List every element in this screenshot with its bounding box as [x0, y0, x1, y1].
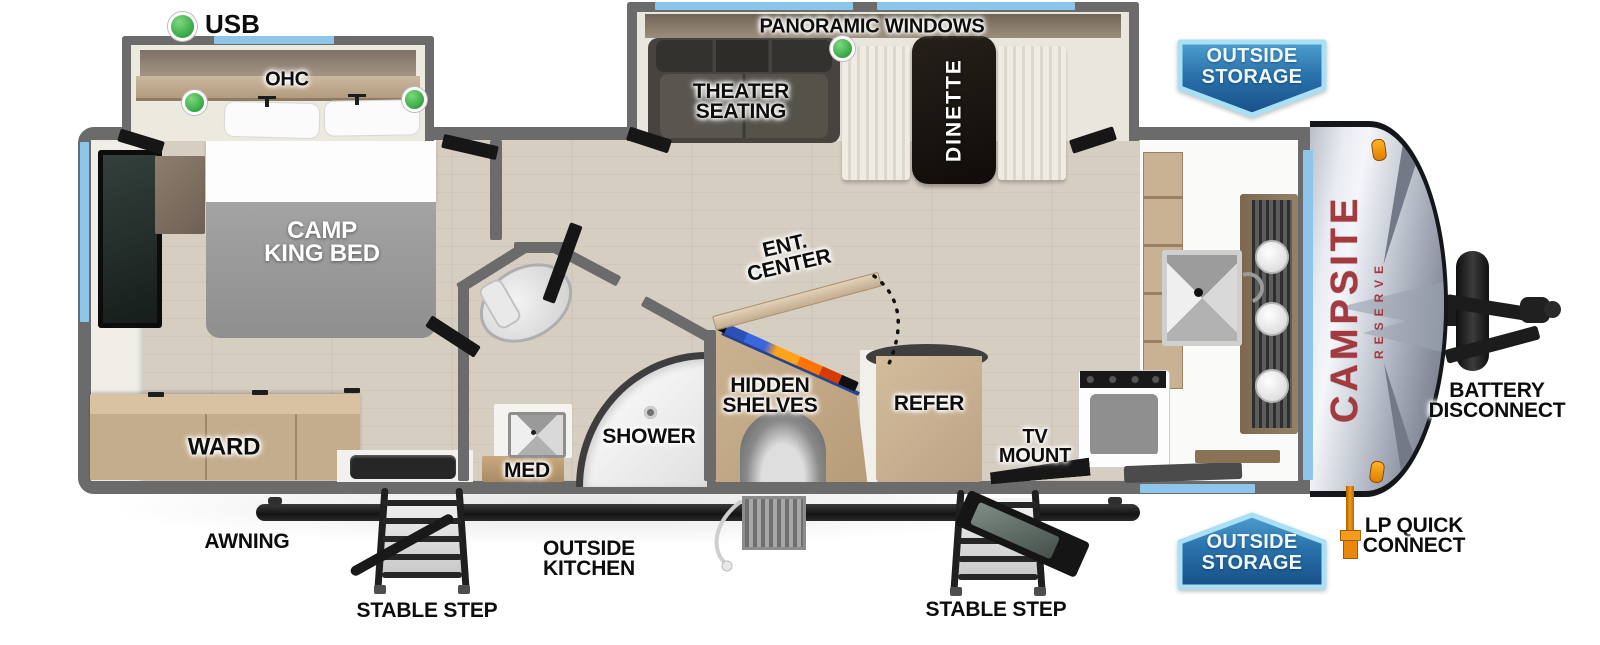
tv-swing-arc [858, 266, 928, 374]
panoramic-windows-label: PANORAMIC WINDOWS [759, 18, 984, 37]
theater-backrest [656, 40, 832, 72]
bath-wall [458, 282, 469, 481]
ward-label: WARD [188, 437, 261, 460]
lp-connector [1343, 540, 1358, 559]
bed-sheet [206, 140, 436, 202]
rv-floorplan: USB CAMP KING BED WARD OHC THEATER SEATI… [0, 0, 1600, 645]
step-rung [382, 500, 462, 506]
step-rung [958, 556, 1038, 562]
bar-stool [1255, 302, 1289, 336]
bar-stool [1255, 240, 1289, 274]
stove-cooktop [1080, 371, 1166, 388]
outside-kitchen-label: OUTSIDE KITCHEN [543, 539, 635, 579]
refer-label: REFER [894, 394, 964, 414]
shower-label: SHOWER [602, 427, 695, 447]
wardrobe-hinge [252, 390, 268, 395]
shower-drain [644, 406, 657, 419]
pillow [224, 101, 321, 140]
kitchen-sink-drain [1194, 288, 1203, 297]
reading-light [258, 96, 276, 99]
vanity-sink [508, 412, 566, 458]
living-slide-window-strip [877, 2, 1075, 10]
dinette-bench [842, 46, 910, 180]
awning-bracket [1108, 497, 1122, 505]
hitch-ball [1544, 301, 1561, 318]
awning-label: AWNING [204, 532, 289, 552]
wardrobe-hinge [344, 388, 360, 393]
hidden-shelves-label: HIDDEN SHELVES [722, 376, 817, 416]
step-rung [382, 572, 462, 578]
outside-kitchen-sink [350, 455, 456, 479]
bedroom-tv [98, 150, 162, 328]
dinette-bench [998, 46, 1066, 180]
entry-door-window-strip [1140, 484, 1255, 493]
awning-bracket [268, 497, 282, 505]
outside-kitchen-griddle [742, 496, 806, 550]
theater-seating-label: THEATER SEATING [693, 82, 789, 122]
kitchen-sink [1162, 250, 1242, 346]
battery-disconnect-label: BATTERY DISCONNECT [1429, 381, 1566, 421]
usb-port-dot [402, 87, 427, 112]
outside-storage-top-label: OUTSIDE STORAGE [1202, 46, 1303, 88]
front-window-strip [1303, 150, 1313, 480]
wardrobe-seam [295, 414, 297, 480]
step-rung [958, 574, 1038, 580]
ent-center-wall [704, 330, 716, 481]
usb-legend-label: USB [205, 11, 260, 37]
brand-reserve: RESERVE [1370, 127, 1388, 491]
vanity-faucet [531, 430, 536, 435]
wardrobe-hinge [148, 392, 164, 397]
rear-window-strip [80, 142, 89, 322]
lp-pipe [1346, 486, 1354, 532]
dinette-label: DINETTE [938, 52, 970, 168]
stable-step-right-label: STABLE STEP [926, 600, 1067, 620]
usb-port-dot [182, 90, 207, 115]
bar-stool [1255, 369, 1289, 403]
med-label: MED [504, 461, 550, 481]
living-slide-window-strip [655, 2, 853, 10]
stable-step-left-label: STABLE STEP [357, 601, 498, 621]
usb-port-dot [830, 36, 855, 61]
bed-label: CAMP KING BED [264, 220, 380, 266]
nightstand [155, 156, 205, 234]
lp-quick-connect-label: LP QUICK CONNECT [1363, 516, 1465, 556]
step-foot [1034, 587, 1046, 596]
step-foot [374, 585, 386, 594]
entry-mat-wood [1195, 450, 1280, 463]
step-foot [458, 585, 470, 594]
outside-storage-bottom-label: OUTSIDE STORAGE [1202, 532, 1303, 574]
stove-oven-door [1090, 394, 1158, 456]
step-foot [950, 587, 962, 596]
ohc-label: OHC [265, 71, 309, 90]
refrigerator [876, 356, 982, 482]
tv-mount-label: TV MOUNT [999, 428, 1071, 466]
reading-light [348, 94, 366, 97]
brand-campsite: CAMPSITE [1322, 127, 1368, 491]
usb-legend-dot [168, 12, 197, 41]
front-cap: CAMPSITE RESERVE [1310, 121, 1448, 497]
